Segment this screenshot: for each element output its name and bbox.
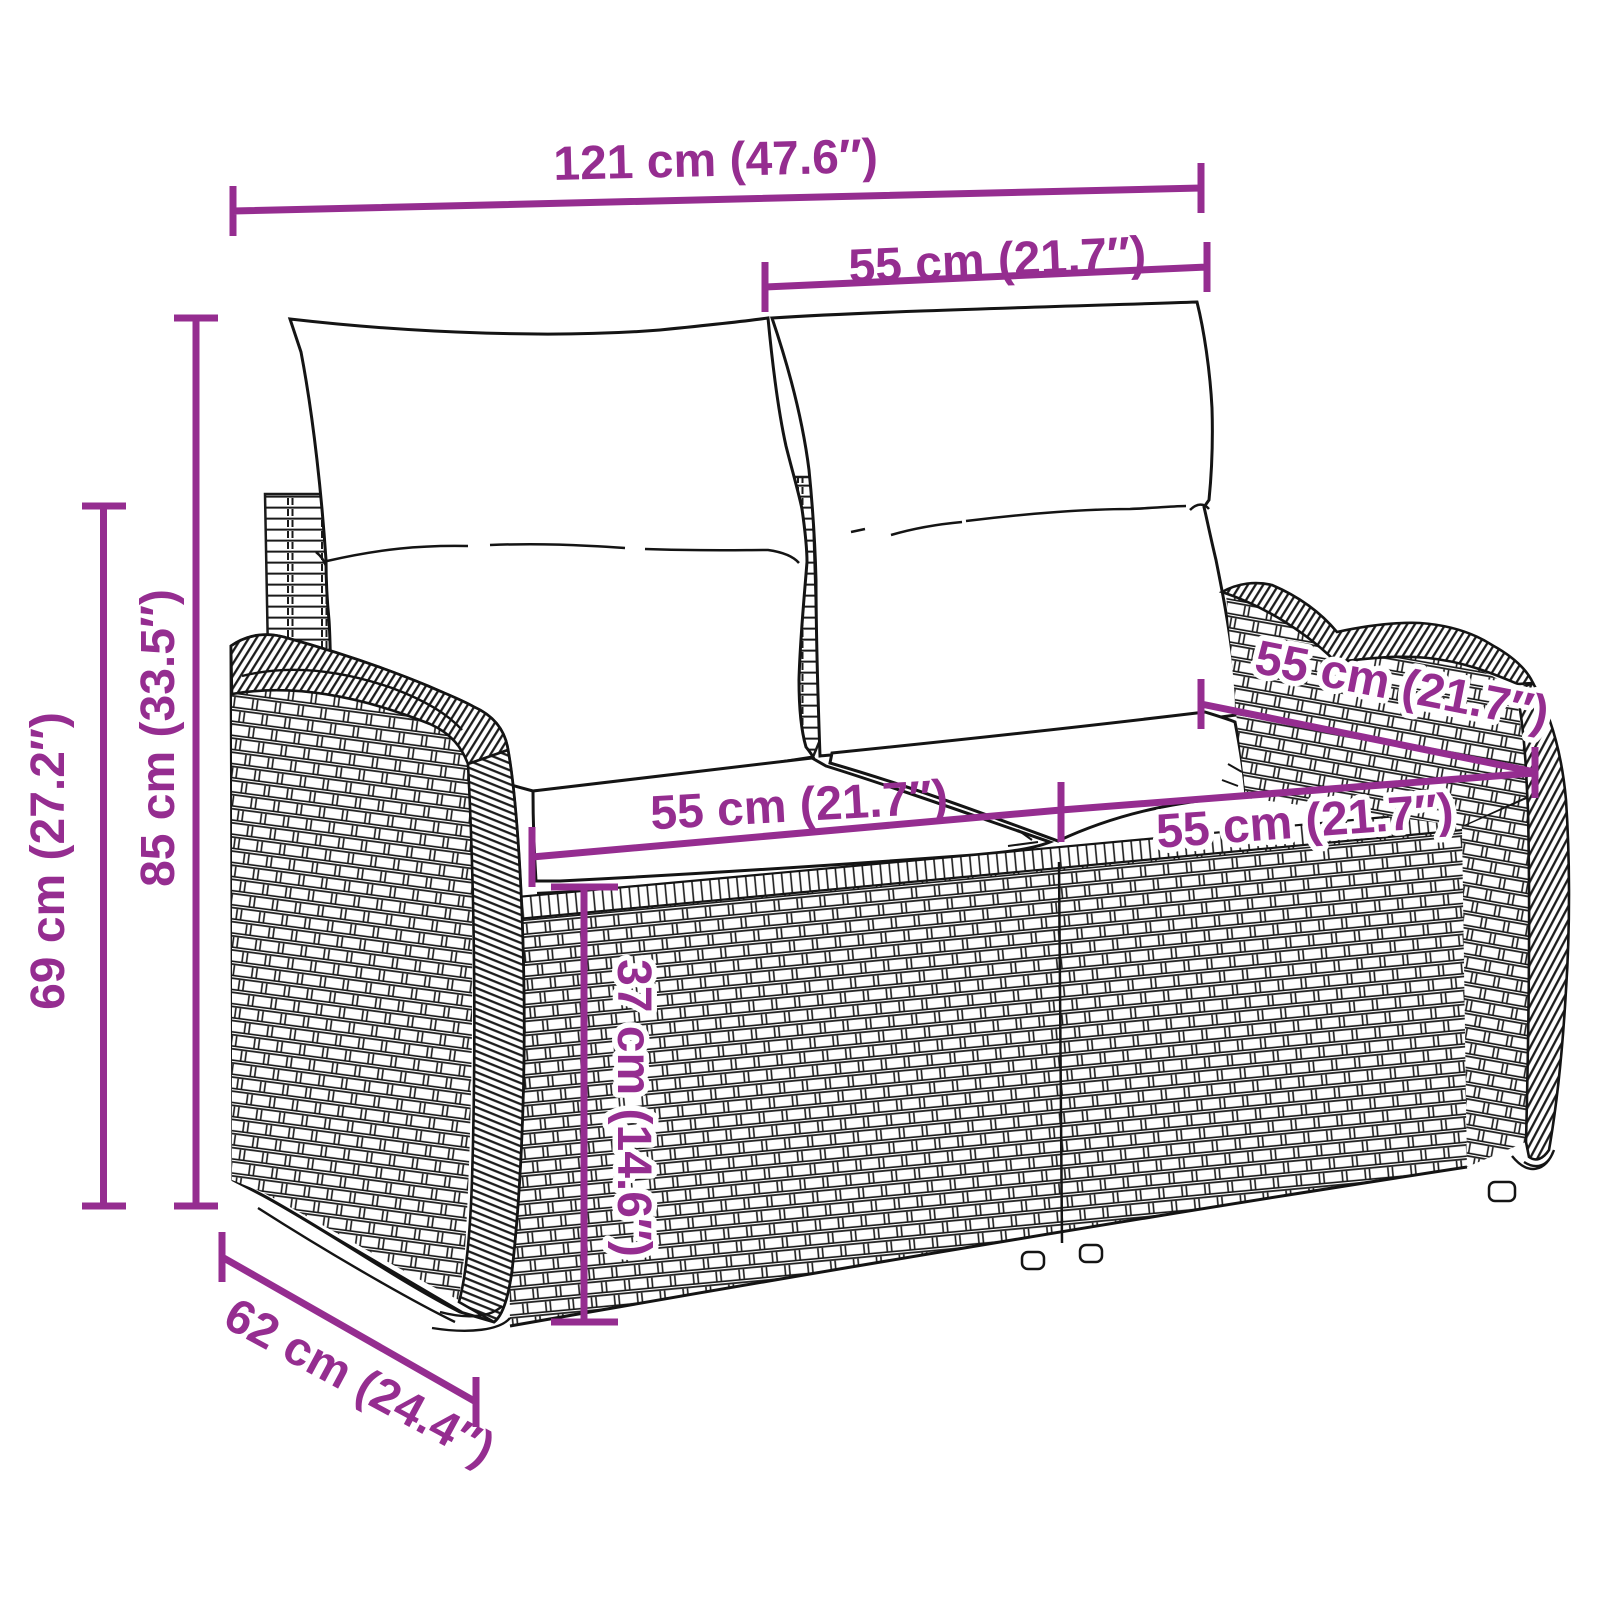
svg-text:37 cm (14.6″): 37 cm (14.6″) <box>607 959 660 1257</box>
svg-text:121 cm (47.6″): 121 cm (47.6″) <box>553 130 879 191</box>
svg-text:69 cm (27.2″): 69 cm (27.2″) <box>22 712 75 1010</box>
svg-text:85 cm (33.5″): 85 cm (33.5″) <box>132 589 185 887</box>
